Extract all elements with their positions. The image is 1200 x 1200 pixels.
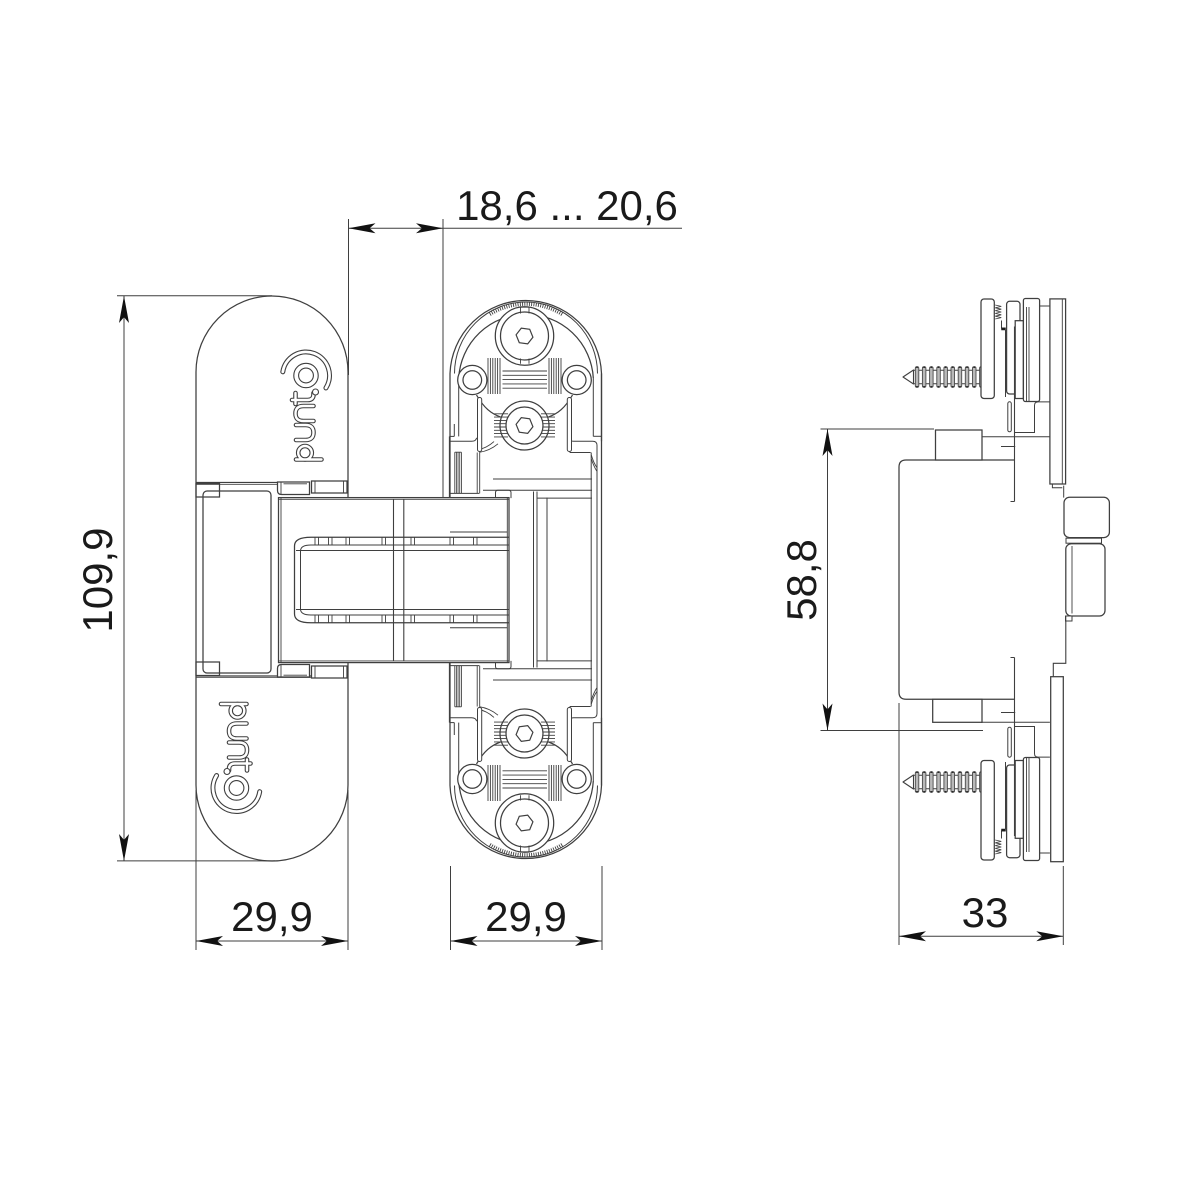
svg-text:33: 33	[962, 889, 1009, 936]
svg-text:18,6 ... 20,6: 18,6 ... 20,6	[456, 182, 678, 229]
svg-text:29,9: 29,9	[231, 893, 313, 940]
svg-text:58,8: 58,8	[778, 539, 825, 621]
svg-text:109,9: 109,9	[74, 527, 121, 632]
svg-text:29,9: 29,9	[485, 893, 567, 940]
